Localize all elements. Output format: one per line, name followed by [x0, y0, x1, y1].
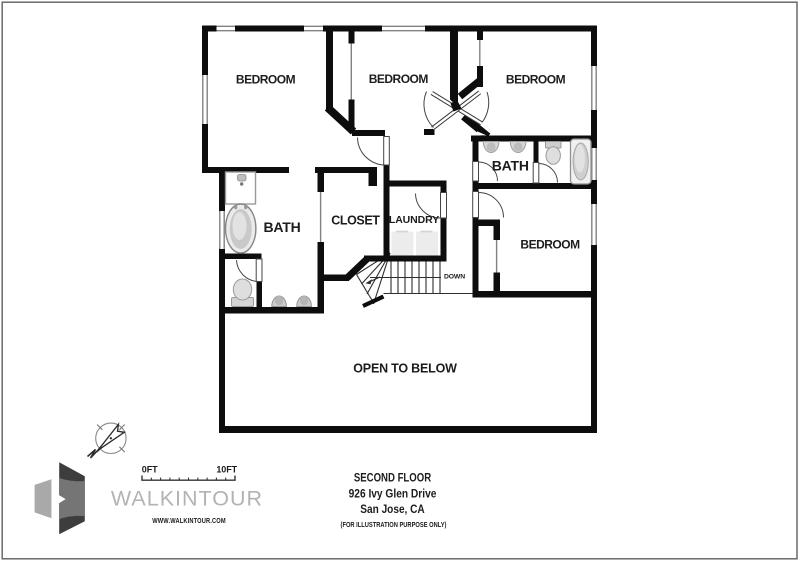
svg-text:BEDROOM: BEDROOM [236, 73, 296, 87]
svg-text:0FT: 0FT [142, 465, 158, 475]
svg-text:(FOR ILLUSTRATION PURPOSE ONLY: (FOR ILLUSTRATION PURPOSE ONLY) [341, 521, 447, 529]
svg-text:LAUNDRY: LAUNDRY [389, 214, 439, 226]
svg-text:BATH: BATH [263, 219, 300, 235]
svg-text:926 Ivy Glen Drive: 926 Ivy Glen Drive [349, 488, 437, 501]
svg-text:BEDROOM: BEDROOM [520, 237, 580, 251]
svg-text:DOWN: DOWN [444, 273, 465, 280]
svg-text:BEDROOM: BEDROOM [369, 72, 429, 86]
svg-text:BATH: BATH [492, 158, 529, 174]
svg-text:CLOSET: CLOSET [331, 213, 380, 227]
svg-text:San Jose, CA: San Jose, CA [360, 503, 424, 516]
svg-text:10FT: 10FT [216, 465, 237, 475]
svg-text:WWW.WALKINTOUR.COM: WWW.WALKINTOUR.COM [152, 517, 226, 525]
svg-text:BEDROOM: BEDROOM [506, 72, 566, 86]
svg-text:WALKINTOUR: WALKINTOUR [111, 487, 263, 511]
svg-text:OPEN TO BELOW: OPEN TO BELOW [353, 362, 457, 376]
svg-text:SECOND FLOOR: SECOND FLOOR [354, 471, 431, 484]
